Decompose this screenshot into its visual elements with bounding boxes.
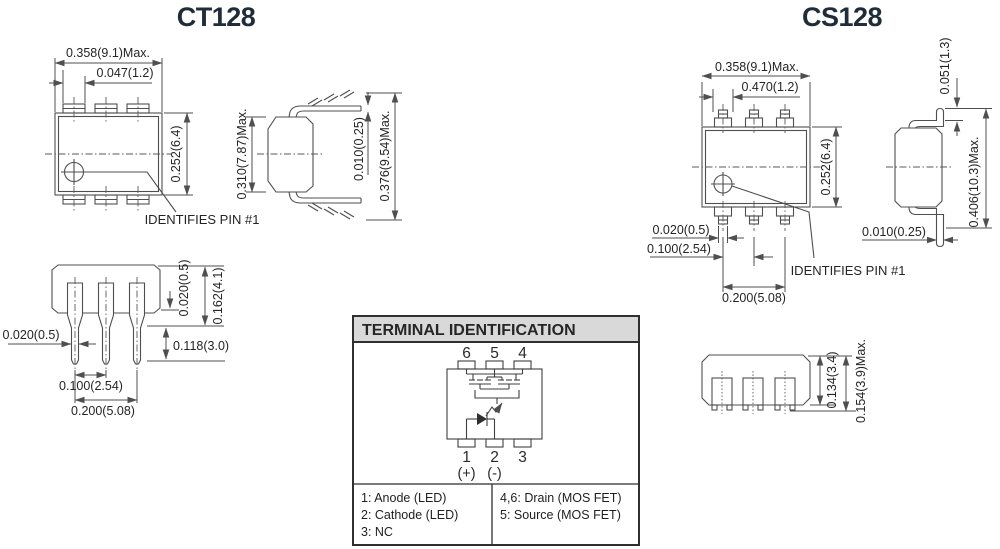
cs128-title: CS128: [802, 2, 883, 32]
svg-text:0.310(7.87)Max.: 0.310(7.87)Max.: [235, 108, 249, 199]
svg-text:0.020(0.5): 0.020(0.5): [653, 223, 710, 237]
ct128-top-pins: [63, 97, 149, 122]
svg-text:1: 1: [462, 449, 471, 466]
ct128-front-dims: 0.162(4.1) 0.020(0.5) 0.118(3.0) 0.020(0…: [3, 260, 230, 418]
legend-item: 4,6: Drain (MOS FET): [500, 491, 622, 505]
datasheet-package-drawing: CT128 IDE: [0, 0, 1000, 549]
svg-text:0.134(3.4): 0.134(3.4): [825, 352, 839, 409]
svg-text:0.470(1.2): 0.470(1.2): [742, 80, 799, 94]
svg-text:0.358(9.1)Max.: 0.358(9.1)Max.: [66, 46, 150, 60]
legend-item: 5: Source (MOS FET): [500, 508, 621, 522]
ct128-side-view: 0.310(7.87)Max. 0.010(0.25) 0.376(9.54)M…: [235, 90, 402, 220]
ct128-front-view: 0.162(4.1) 0.020(0.5) 0.118(3.0) 0.020(0…: [3, 260, 230, 418]
cs128-section: CS128 IDE: [647, 2, 992, 423]
svg-text:0.010(0.25): 0.010(0.25): [352, 117, 366, 181]
svg-text:2: 2: [490, 449, 499, 466]
cs128-bottom-dims: 0.134(3.4) 0.154(3.9)Max.: [790, 339, 868, 423]
legend-item: 1: Anode (LED): [361, 491, 446, 505]
ct128-top-dims: 0.358(9.1)Max. 0.047(1.2) 0.252(6.4): [49, 46, 193, 195]
legend-item: 3: NC: [361, 525, 393, 539]
svg-text:6: 6: [462, 345, 471, 362]
svg-text:3: 3: [518, 449, 527, 466]
cs128-bottom-view: 0.134(3.4) 0.154(3.9)Max.: [702, 339, 868, 423]
svg-text:0.252(6.4): 0.252(6.4): [819, 139, 833, 196]
svg-text:5: 5: [490, 345, 499, 362]
svg-text:0.051(1.3): 0.051(1.3): [938, 38, 952, 95]
cs128-side-view: 0.051(1.3) 0.406(10.3)Max. 0.010(0.25): [862, 38, 992, 247]
ct128-front-pins: [68, 277, 145, 370]
cs128-bottom-pins: [715, 201, 794, 231]
ct128-bottom-pins: [63, 186, 149, 211]
svg-text:0.010(0.25): 0.010(0.25): [862, 225, 926, 239]
ct128-title: CT128: [177, 2, 256, 32]
svg-text:0.118(3.0): 0.118(3.0): [173, 339, 229, 353]
ct128-top-view: IDENTIFIES PIN #1 0.358(9.1)Max. 0.047(1…: [45, 46, 259, 227]
svg-text:0.200(5.08): 0.200(5.08): [722, 291, 786, 305]
svg-text:0.100(2.54): 0.100(2.54): [59, 379, 123, 393]
svg-text:0.406(10.3)Max.: 0.406(10.3)Max.: [967, 136, 981, 227]
cs128-pin1-note: IDENTIFIES PIN #1: [791, 263, 906, 278]
svg-text:0.047(1.2): 0.047(1.2): [97, 66, 154, 80]
svg-text:0.252(6.4): 0.252(6.4): [169, 126, 183, 183]
svg-text:0.100(2.54): 0.100(2.54): [647, 242, 711, 256]
svg-text:(-): (-): [487, 466, 502, 482]
svg-text:0.162(4.1): 0.162(4.1): [211, 268, 225, 325]
cs128-bottom-pads: [712, 371, 795, 414]
svg-text:0.376(9.54)Max.: 0.376(9.54)Max.: [378, 110, 392, 201]
terminal-identification-panel: TERMINAL IDENTIFICATION 6 5 4 1 2 3 (+) …: [353, 316, 639, 545]
panel-title: TERMINAL IDENTIFICATION: [362, 322, 576, 339]
legend-item: 2: Cathode (LED): [361, 508, 458, 522]
svg-text:(+): (+): [457, 466, 475, 482]
ct128-section: CT128 IDE: [3, 2, 402, 418]
svg-text:0.200(5.08): 0.200(5.08): [71, 404, 135, 418]
ct128-pin1-note: IDENTIFIES PIN #1: [145, 212, 260, 227]
cs128-top-pins: [715, 104, 794, 133]
svg-text:0.358(9.1)Max.: 0.358(9.1)Max.: [715, 60, 799, 74]
svg-text:0.020(0.5): 0.020(0.5): [3, 328, 60, 342]
svg-text:0.020(0.5): 0.020(0.5): [177, 260, 191, 317]
svg-text:4: 4: [518, 345, 527, 362]
cs128-top-view: IDENTIFIES PIN #1 0.358(9.1)Max. 0.470(1…: [647, 60, 905, 305]
svg-text:0.154(3.9)Max.: 0.154(3.9)Max.: [854, 339, 868, 423]
ct128-lead-break-hatch: [308, 90, 354, 219]
